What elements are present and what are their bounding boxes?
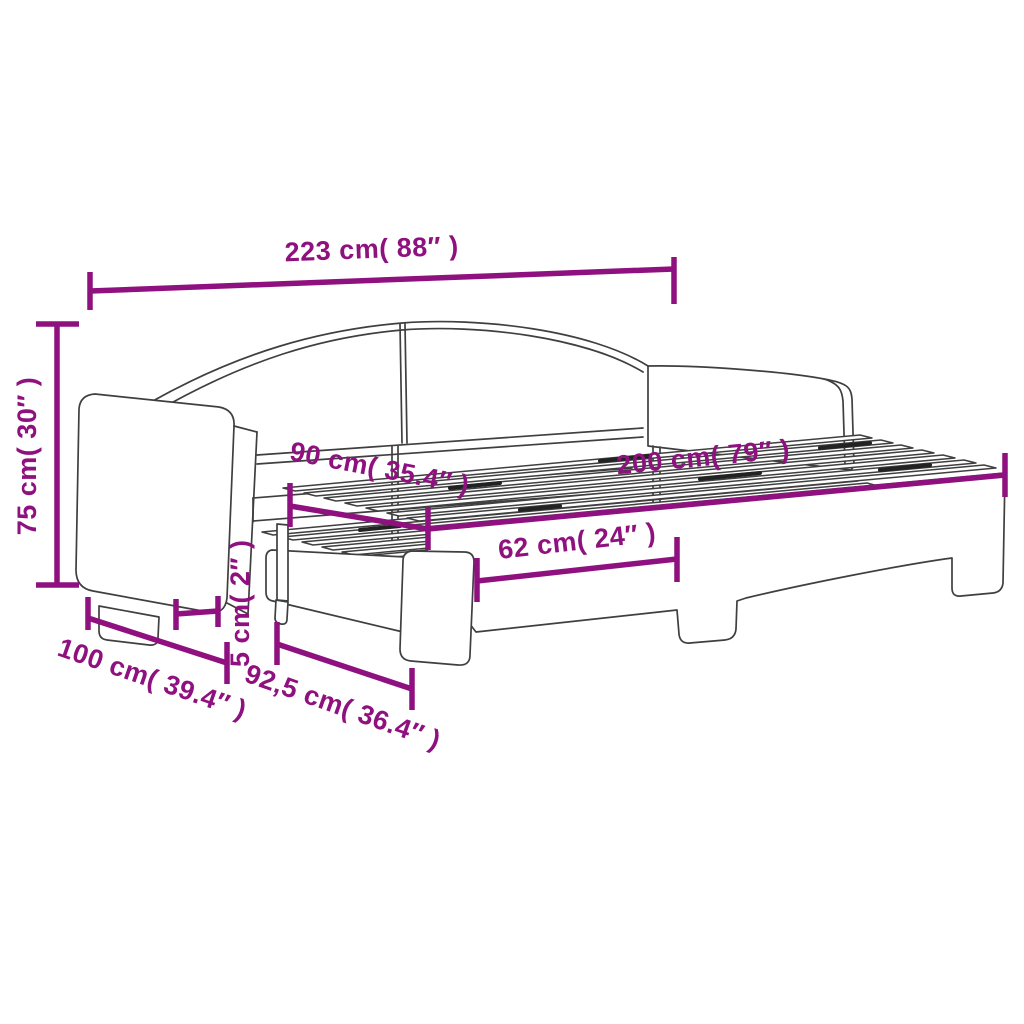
label-overall-depth: 100 cm( 39.4″ ) — [54, 632, 251, 725]
dimension-overall-length — [90, 257, 674, 310]
label-overall-height: 75 cm( 30″ ) — [12, 377, 42, 536]
bed-left-leg — [277, 524, 288, 601]
daybed-dimension-diagram: 223 cm( 88″ ) 75 cm( 30″ ) 90 cm( 35.4″ … — [0, 0, 1024, 1024]
trundle-front-panel — [400, 551, 474, 665]
label-overall-length: 223 cm( 88″ ) — [284, 231, 459, 268]
label-clearance: 5 cm( 2″ ) — [225, 540, 255, 667]
bed-left-foot — [275, 600, 288, 624]
backrest-middle-seam — [400, 324, 402, 443]
screenshot-root: 223 cm( 88″ ) 75 cm( 30″ ) 90 cm( 35.4″ … — [0, 0, 1024, 1024]
dimension-overall-height — [36, 324, 79, 585]
